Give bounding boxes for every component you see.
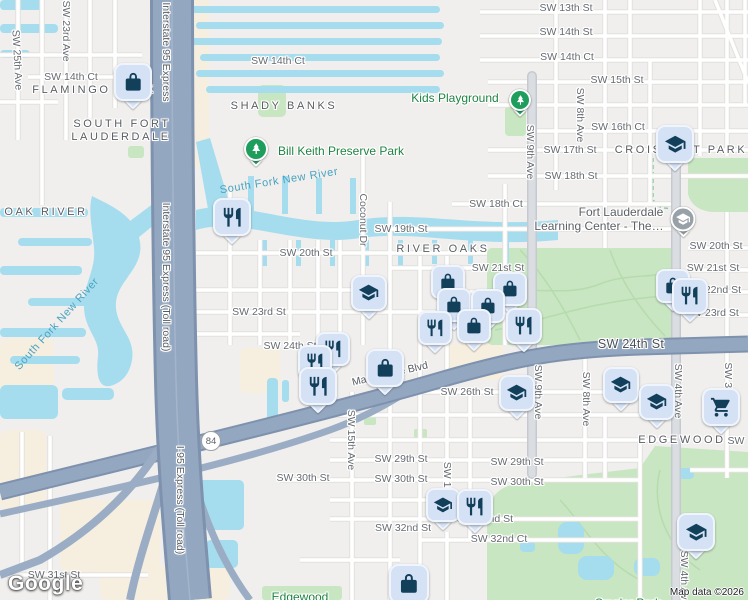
school-pin[interactable] xyxy=(677,513,715,551)
pin-body xyxy=(639,384,675,420)
park-tree-icon xyxy=(514,94,527,107)
park-tree-icon xyxy=(249,142,263,156)
pin-body xyxy=(656,125,694,163)
school-icon xyxy=(664,133,686,155)
restaurant-icon xyxy=(425,318,445,338)
pin-body xyxy=(389,564,429,600)
restaurant-icon xyxy=(513,315,534,336)
restaurant-pin[interactable] xyxy=(506,308,542,344)
pin-body xyxy=(351,275,387,311)
school-icon xyxy=(675,211,690,226)
restaurant-icon xyxy=(221,206,243,228)
pin-body xyxy=(509,89,531,111)
shopping-bag-icon xyxy=(397,572,421,596)
restaurant-icon xyxy=(464,496,485,517)
pin-body xyxy=(426,488,460,522)
pin-body xyxy=(499,375,535,411)
school-pin[interactable] xyxy=(671,207,696,232)
restaurant-pin[interactable] xyxy=(672,278,708,314)
school-icon xyxy=(610,374,631,395)
school-icon xyxy=(646,391,667,412)
map-canvas[interactable]: SW 13th StSW 14th StSW 14th CtSW 15th St… xyxy=(0,0,748,600)
shopping-cart-pin[interactable] xyxy=(702,388,740,426)
pin-body xyxy=(213,198,251,236)
pin-body xyxy=(671,207,696,232)
pin-body xyxy=(418,311,452,345)
school-pin[interactable] xyxy=(426,488,460,522)
pin-body xyxy=(114,63,152,101)
pin-body xyxy=(603,367,639,403)
restaurant-icon xyxy=(307,375,329,397)
pin-body xyxy=(702,388,740,426)
shopping-bag-pin[interactable] xyxy=(114,63,152,101)
shopping-bag-icon xyxy=(464,316,484,336)
restaurant-pin[interactable] xyxy=(213,198,251,236)
pin-body xyxy=(677,513,715,551)
shopping-bag-pin[interactable] xyxy=(457,309,491,343)
school-icon xyxy=(685,521,707,543)
park-tree-pin[interactable] xyxy=(509,89,531,111)
pin-body xyxy=(244,137,268,161)
park-tree-pin[interactable] xyxy=(244,137,268,161)
shopping-bag-icon xyxy=(374,357,396,379)
shopping-bag-icon xyxy=(122,71,144,93)
pin-body xyxy=(506,308,542,344)
pin-body xyxy=(299,367,337,405)
restaurant-icon xyxy=(679,285,700,306)
school-icon xyxy=(358,282,379,303)
school-icon xyxy=(506,382,527,403)
school-pin[interactable] xyxy=(639,384,675,420)
shopping-bag-pin[interactable] xyxy=(389,564,429,600)
map-markers-layer xyxy=(0,0,748,600)
pin-body xyxy=(672,278,708,314)
restaurant-pin[interactable] xyxy=(299,367,337,405)
pin-body xyxy=(366,349,404,387)
pin-body xyxy=(457,489,493,525)
restaurant-pin[interactable] xyxy=(418,311,452,345)
school-icon xyxy=(433,495,453,515)
restaurant-pin[interactable] xyxy=(457,489,493,525)
school-pin[interactable] xyxy=(351,275,387,311)
school-pin[interactable] xyxy=(499,375,535,411)
pin-body xyxy=(457,309,491,343)
school-pin[interactable] xyxy=(603,367,639,403)
shopping-cart-icon xyxy=(710,396,732,418)
school-pin[interactable] xyxy=(656,125,694,163)
map-data-attribution: Map data ©2026 xyxy=(670,587,744,598)
google-logo[interactable]: Google xyxy=(8,572,83,596)
shopping-bag-pin[interactable] xyxy=(366,349,404,387)
